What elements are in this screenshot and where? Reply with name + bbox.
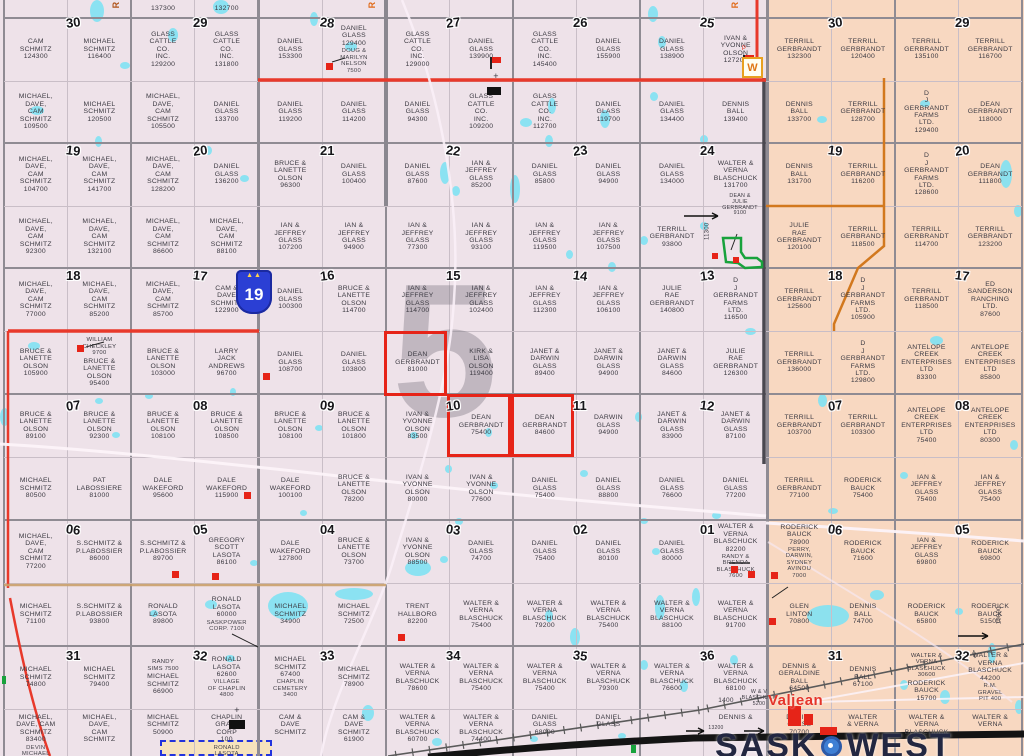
owner-text-line: MICHAEL, <box>19 533 53 540</box>
parcel-cell[interactable]: WALTER &VERNABLASCHUCK60700 <box>386 709 450 756</box>
section-number: 04 <box>320 522 334 537</box>
map-line <box>723 238 762 268</box>
parcel-cell[interactable]: IVAN &YVONNEOLSON88500 <box>386 520 450 583</box>
parcel-cell[interactable]: MICHAEL,DAVE,CAMSCHMITZ109500 <box>4 81 68 143</box>
owner-text-line: 136000 <box>787 366 811 373</box>
owner-text-line: MICHAEL <box>338 666 370 673</box>
owner-text-line: DANIEL <box>659 101 685 108</box>
owner-text-line: BLASCHUCK <box>587 678 631 685</box>
parcel-cell[interactable]: ANTELOPECREEKENTERPRISESLTD75400 <box>895 394 959 457</box>
parcel-cell[interactable]: MICHAEL,DAVE, CAMSCHMITZ83400DEVINMICHAE… <box>4 709 68 756</box>
parcel-cell[interactable]: KIRK &LISAOLSON119400 <box>449 331 513 394</box>
parcel-cell[interactable]: IAN &JEFFREYGLASS69800 <box>895 520 959 583</box>
farmstead-icon <box>712 253 718 259</box>
parcel-cell[interactable]: DJGERBRANDTFARMSLTD.129800 <box>831 331 895 394</box>
owner-text-line: 125600 <box>787 303 811 310</box>
owner-text-line: D <box>924 90 929 97</box>
owner-text-line: DANIEL <box>659 163 685 170</box>
parcel-cell[interactable]: GLASSCATTLECO.INC.109200 <box>449 81 513 143</box>
parcel-cell[interactable]: WALTER &VERNABLASCHUCK30600RODERICKBAUCK… <box>895 646 959 709</box>
owner-text-line: TERRILL <box>848 38 878 45</box>
parcel-cell[interactable]: IAN &JEFFREYGLASS75400 <box>895 457 959 520</box>
owner-text-line: BRUCE & <box>338 537 370 544</box>
parcel-cell[interactable]: TRENTHALLBORG82200 <box>386 583 450 646</box>
owner-text-line: 133700 <box>787 116 811 123</box>
owner-text-line: GLASS <box>215 171 239 178</box>
owner-text-line: VERNA <box>978 721 1003 728</box>
highlighted-parcel-outline[interactable] <box>384 331 447 396</box>
owner-text-line: AVINOU <box>786 566 813 572</box>
building-icon <box>229 720 245 729</box>
parcel-cell[interactable]: DENNISBALL131700 <box>768 143 832 206</box>
parcel-cell[interactable]: WILLIAMCHECKLEY9700BRUCE &LANETTEOLSON95… <box>68 331 132 394</box>
owner-text-line: BLASCHUCK <box>968 667 1012 674</box>
parcel-cell[interactable]: DJGERBRANDTFARMSLTD.129400 <box>895 81 959 143</box>
parcel-cell[interactable]: MICHAELSCHMITZ71100 <box>4 583 68 646</box>
parcel-cell[interactable]: CAM &DAVESCHMITZ61900 <box>322 709 386 756</box>
section-number: 05 <box>954 521 970 538</box>
parcel-cell[interactable]: IAN &JEFFREYGLASS94900 <box>322 206 386 268</box>
parcel-cell[interactable]: MICHAELSCHMITZ74800 <box>4 646 68 709</box>
parcel-cell[interactable]: RODERICKBAUCK65800 <box>895 583 959 646</box>
parcel-cell[interactable]: WALTER &VERNABLASCHUCK75400 <box>577 583 641 646</box>
owner-text-line: SCHMITZ <box>147 721 179 728</box>
farmstead-icon <box>244 492 251 499</box>
owner-text-line: D <box>860 277 865 284</box>
owner-text-line: GLASS <box>596 300 620 307</box>
owner-text-line: VERNA <box>532 670 557 677</box>
owner-text-line: JANET & <box>657 411 687 418</box>
map-pin-icon <box>821 736 842 756</box>
parcel-cell[interactable]: JANET &DARWINGLASS84600 <box>640 331 704 394</box>
owner-text-line: 134000 <box>660 178 684 185</box>
owner-text-line: RODERICK <box>971 540 1009 547</box>
owner-text-line: WALTER & <box>463 663 499 670</box>
owner-text-line: SCHMITZ <box>338 674 370 681</box>
owner-text-line: 69800 <box>980 555 1000 562</box>
owner-text-line: 116400 <box>88 53 112 60</box>
section-number: 15 <box>446 268 460 283</box>
owner-text-line: GLASS <box>469 300 493 307</box>
section-number: 32 <box>954 647 970 664</box>
parcel-cell[interactable]: DANIELGLASS77200 <box>704 457 768 520</box>
owner-text-line: YVONNE <box>466 481 496 488</box>
owner-text-line: GLASS <box>278 108 302 115</box>
owner-text-line: CREEK <box>914 351 939 358</box>
owner-text-line: DAVE, <box>216 226 237 233</box>
owner-text-line: CO. <box>411 46 424 53</box>
owner-text-line: GERBRANDT <box>777 422 822 429</box>
owner-text-line: VERNA <box>723 167 748 174</box>
owner-text-line: 114700 <box>915 241 939 248</box>
parcel-cell[interactable]: BRUCE &LANETTEOLSON108100 <box>259 394 323 457</box>
owner-text-line: 155900 <box>596 53 620 60</box>
owner-text-line: WALTER & <box>527 663 563 670</box>
parcel-cell[interactable]: RONALDLASOTA89800 <box>131 583 195 646</box>
owner-text-line: 75400 <box>853 492 873 499</box>
parcel-cell[interactable]: WALTER &VERNABLASCHUCK91700 <box>704 583 768 646</box>
parcel-cell[interactable]: DANIELGLASS68000 <box>513 709 577 756</box>
owner-text-line: 86100 <box>217 559 237 566</box>
owner-text-line: 128600 <box>914 189 938 196</box>
parcel-cell[interactable]: GLASSCATTLECO.INC.145400 <box>513 18 577 81</box>
owner-text-line: 96300 <box>280 182 300 189</box>
owner-text-line: 129800 <box>851 377 875 384</box>
owner-text-line: OLSON <box>278 175 303 182</box>
parcel-cell[interactable]: DANIELGLASS153300 <box>259 18 323 81</box>
parcel-cell[interactable]: 137300 <box>131 0 195 18</box>
parcel-cell[interactable]: BRUCE &LANETTEOLSON78200 <box>322 457 386 520</box>
owner-text-line: GLASS <box>406 108 430 115</box>
owner-text-line: GREGORY <box>209 537 245 544</box>
owner-text-line: DANIEL <box>341 101 367 108</box>
owner-text-line: 100300 <box>278 303 302 310</box>
owner-text-line: DAVE, <box>25 540 46 547</box>
parcel-cell[interactable]: IAN &JEFFREYGLASS77300 <box>386 206 450 268</box>
section-number: 06 <box>827 521 843 538</box>
owner-text-line: 114200 <box>342 116 366 123</box>
owner-text-line: TERRILL <box>848 226 878 233</box>
owner-text-line: BRUCE & <box>274 411 306 418</box>
owner-text-line: GLASS <box>342 359 366 366</box>
parcel-cell[interactable]: TERRILLGERBRANDT125600 <box>768 268 832 331</box>
section-number: 19 <box>65 142 81 159</box>
owner-text-line: BLASCHUCK <box>459 729 503 736</box>
parcel-cell[interactable]: TERRILLGERBRANDT135100 <box>895 18 959 81</box>
owner-text-line: IAN & <box>472 222 491 229</box>
owner-text-line: CAM <box>155 233 171 240</box>
crossing-marker-icon <box>2 676 6 684</box>
owner-text-line: GLASS <box>406 300 430 307</box>
parcel-cell[interactable]: IAN &JEFFREYGLASS93100 <box>449 206 513 268</box>
owner-text-line: DENNIS & <box>719 714 753 721</box>
parcel-cell[interactable]: IAN &JEFFREYGLASS75400 <box>958 457 1022 520</box>
parcel-cell[interactable]: BRUCE &LANETTEOLSON96300 <box>259 143 323 206</box>
parcel-cell[interactable]: CAM &DAVESCHMITZ <box>259 709 323 756</box>
parcel-cell[interactable]: WALTER &VERNABLASCHUCK88100 <box>640 583 704 646</box>
parcel-cell[interactable]: CHAPLINGRAINCORP100RONALDLASOTA80000 <box>195 709 259 756</box>
owner-text-line: 89400 <box>535 370 555 377</box>
parcel-cell[interactable]: BRUCE &LANETTEOLSON105900 <box>4 331 68 394</box>
owner-text-line: CAM <box>155 108 171 115</box>
owner-text-line: 119700 <box>597 116 621 123</box>
owner-text-line: PAT <box>93 477 106 484</box>
map-annotation: + <box>231 706 243 716</box>
parcel-cell[interactable]: IVAN &YVONNEOLSON77600 <box>449 457 513 520</box>
parcel-cell[interactable]: DEANGERBRANDT118000 <box>958 81 1022 143</box>
owner-text-line: SCHMITZ <box>211 241 243 248</box>
owner-text-line: DAVE, CAM <box>16 721 55 728</box>
owner-text-line: CORP. 7100 <box>207 626 247 632</box>
owner-text-line: MICHAEL <box>83 38 115 45</box>
parcel-cell[interactable]: MICHAELSCHMITZ67400CHAPLINCEMETERY3400 <box>259 646 323 709</box>
owner-text-line: 60000 <box>217 611 237 618</box>
owner-text-line: SCHMITZ <box>83 108 115 115</box>
owner-text-line: 84600 <box>662 370 682 377</box>
owner-text-line: WALTER & <box>400 714 436 721</box>
parcel-cell[interactable]: DENNISBALL139400 <box>704 81 768 143</box>
owner-text-line: GLASS <box>978 489 1002 496</box>
owner-text-line: 118500 <box>915 303 939 310</box>
owner-text-line: MICHAEL <box>147 673 179 680</box>
parcel-cell[interactable]: RODERICKBAUCK51500 <box>958 583 1022 646</box>
owner-text-line: GERBRANDT <box>840 355 885 362</box>
parcel-cell[interactable]: GLASSCATTLECO.INC.112700 <box>513 81 577 143</box>
farmstead-icon <box>748 571 755 578</box>
owner-text-line: 80000 <box>662 555 682 562</box>
parcel-cell[interactable]: MICHAELSCHMITZ120500 <box>68 81 132 143</box>
highlighted-parcel-outline[interactable] <box>511 394 574 457</box>
parcel-cell[interactable]: TERRILLGERBRANDT114700 <box>895 206 959 268</box>
parcel-cell[interactable]: DANIELGLASS108700 <box>259 331 323 394</box>
parcel-cell[interactable]: TERRILLGERBRANDT77100 <box>768 457 832 520</box>
parcel-cell[interactable]: MICHAEL,DAVE,CAMSCHMITZ128200 <box>131 143 195 206</box>
parcel-cell[interactable]: TERRILLGERBRANDT103700 <box>768 394 832 457</box>
farmstead-icon <box>731 566 738 573</box>
parcel-cell[interactable]: DANIELGLASS103800 <box>322 331 386 394</box>
parcel-cell[interactable]: RONALDLASOTA60000SASKPOWERCORP. 7100 <box>195 583 259 646</box>
owner-text-line: 112700 <box>533 123 557 130</box>
owner-text-line: FARMS <box>851 300 876 307</box>
parcel-cell[interactable]: IVAN &YVONNEOLSON80000 <box>386 457 450 520</box>
owner-text-line: 9700 <box>83 350 117 356</box>
parcel-cell[interactable]: DANIELGLASS119200 <box>259 81 323 143</box>
shield-crown-icon: ▲▲ <box>246 272 262 279</box>
parcel-cell[interactable]: DANIELGLASS85800 <box>513 143 577 206</box>
parcel-cell[interactable]: JULIERAEGERBRANDT140800 <box>640 268 704 331</box>
parcel-cell[interactable]: MICHAEL,DAVE,CAMSCHMITZ104700 <box>4 143 68 206</box>
owner-text-line: JEFFREY <box>911 481 943 488</box>
parcel-cell[interactable]: DENNISBALL133700 <box>768 81 832 143</box>
owner-text-line: ANTELOPE <box>907 344 945 351</box>
owner-text-line: 96700 <box>217 370 237 377</box>
owner-text-line: 83400 <box>26 736 46 743</box>
owner-text-line: WAKEFORD <box>270 485 311 492</box>
owner-text-line: OLSON <box>405 552 430 559</box>
owner-text-line: LTD. <box>983 303 998 310</box>
parcel-cell[interactable]: TERRILLGERBRANDT118500 <box>831 206 895 268</box>
owner-text-line: SCHMITZ <box>20 303 52 310</box>
parcel-cell[interactable]: S.SCHMITZ &P.LABOSSIER89700 <box>131 520 195 583</box>
owner-text-line: 60700 <box>407 736 427 743</box>
owner-text-line: JULIE <box>789 222 809 229</box>
parcel-cell[interactable]: DALEWAKEFORD100100 <box>259 457 323 520</box>
owner-text-line: IAN & <box>408 285 427 292</box>
parcel-cell[interactable]: DANIELGLASS138900 <box>640 18 704 81</box>
owner-text-line: MICHAEL, <box>19 218 53 225</box>
parcel-cell[interactable]: MICHAEL,DAVE,CAMSCHMITZ105500 <box>131 81 195 143</box>
parcel-cell[interactable]: DJGERBRANDTFARMSLTD.128600 <box>895 143 959 206</box>
owner-text-line: MICHAEL <box>20 603 52 610</box>
owner-text-line: OLSON <box>405 489 430 496</box>
owner-text-line: 120100 <box>787 244 811 251</box>
owner-text-line: SCHMITZ <box>147 178 179 185</box>
parcel-cell[interactable]: JULIERAEGERBRANDT120100 <box>768 206 832 268</box>
parcel-cell[interactable]: MICHAEL,DAVE,CAMSCHMITZ <box>68 709 132 756</box>
parcel-cell[interactable]: TERRILLGERBRANDT136000 <box>768 331 832 394</box>
owner-text-line: GLASS <box>469 237 493 244</box>
owner-text-line: MICHAEL, <box>82 156 116 163</box>
owner-text-line: 79200 <box>535 622 555 629</box>
parcel-cell[interactable]: RODERICKBAUCK75400 <box>831 457 895 520</box>
parcel-cell[interactable]: IAN &JEFFREYGLASS107500 <box>577 206 641 268</box>
parcel-cell[interactable]: DANIELGLASS76600 <box>640 457 704 520</box>
parcel-cell[interactable]: DENNISBALL74700 <box>831 583 895 646</box>
owner-text-line: GERBRANDT <box>904 105 949 112</box>
parcel-cell[interactable]: BRUCE &LANETTEOLSON103000 <box>131 331 195 394</box>
owner-text-line: DANIEL <box>595 714 621 721</box>
parcel-cell[interactable]: TERRILLGERBRANDT118500 <box>895 268 959 331</box>
parcel-cell[interactable]: MICHAEL,DAVE,CAMSCHMITZ92300 <box>4 206 68 268</box>
parcel-cell[interactable]: DANIELGLASS75400 <box>513 457 577 520</box>
owner-text-line: BRUCE & <box>274 160 306 167</box>
owner-text-line: 11300 <box>705 213 712 249</box>
parcel-cell[interactable]: DANIELGLASS119700 <box>577 81 641 143</box>
owner-text-line: LANETTE <box>211 418 243 425</box>
parcel-cell[interactable]: BRUCE &LANETTEOLSON89100 <box>4 394 68 457</box>
owner-text-line: CO. <box>538 108 551 115</box>
parcel-cell[interactable]: IAN &JEFFREYGLASS119500 <box>513 206 577 268</box>
parcel-cell[interactable]: MICHAEL,DAVE,CAMSCHMITZ86600 <box>131 206 195 268</box>
section-number: 01 <box>700 522 714 537</box>
parcel-cell[interactable]: MICHAEL,DAVE,CAMSCHMITZ77200 <box>4 520 68 583</box>
owner-text-line: WALTER & <box>590 663 626 670</box>
owner-text-line: 44200 <box>980 675 1000 682</box>
owner-text-line: DANIEL <box>341 351 367 358</box>
parcel-cell[interactable]: IVAN &YVONNEOLSON83500 <box>386 394 450 457</box>
owner-text-line: GERBRANDT <box>904 296 949 303</box>
parcel-cell[interactable]: S.SCHMITZ &P.LABOSSIER93800 <box>68 583 132 646</box>
owner-text-line: WAKEFORD <box>143 485 184 492</box>
owner-text-line: 106100 <box>596 307 620 314</box>
owner-text-line: 129400 <box>342 40 366 47</box>
owner-text-line: 77300 <box>407 244 427 251</box>
parcel-cell[interactable]: IAN &JEFFREYGLASS107200 <box>259 206 323 268</box>
parcel-cell[interactable]: GLENLINTON70800 <box>768 583 832 646</box>
parcel-cell[interactable]: DALEWAKEFORD95600 <box>131 457 195 520</box>
owner-text-line: P.LABOSSIER <box>140 548 187 555</box>
parcel-cell[interactable]: TERRILLGERBRANDT128700 <box>831 81 895 143</box>
owner-text-line: LARRY <box>215 348 239 355</box>
parcel-cell[interactable]: CAMSCHMITZ124300 <box>4 18 68 81</box>
parcel-cell[interactable]: TERRILLGERBRANDT93800 <box>640 206 704 268</box>
parcel-cell[interactable]: DALEWAKEFORD127800 <box>259 520 323 583</box>
parcel-cell[interactable]: MICHAELSCHMITZ34900 <box>259 583 323 646</box>
section-number: 08 <box>193 398 207 413</box>
parcel-cell[interactable]: DANIELGLASS134400 <box>640 81 704 143</box>
parcel-cell[interactable]: DANIELGLASS133700 <box>195 81 259 143</box>
parcel-cell[interactable]: WALTER &VERNABLASCHUCK74400 <box>449 709 513 756</box>
owner-text-line: BRUCE & <box>211 411 243 418</box>
parcel-cell[interactable]: LARRYJACKANDREWS96700 <box>195 331 259 394</box>
owner-text-line: HALLBORG <box>398 611 437 618</box>
parcel-cell[interactable]: TERRILLGERBRANDT123200 <box>958 206 1022 268</box>
parcel-cell[interactable]: ANTELOPECREEKENTERPRISESLTD83300 <box>895 331 959 394</box>
parcel-cell[interactable]: DALEWAKEFORD115900 <box>195 457 259 520</box>
owner-text-line: 92300 <box>26 248 46 255</box>
parcel-cell[interactable]: GLASSCATTLECO.INC.129200 <box>131 18 195 81</box>
owner-text-line: BAUCK <box>978 548 1003 555</box>
parcel-cell[interactable]: DANIELGLASS94300 <box>386 81 450 143</box>
section-number: 33 <box>319 647 335 664</box>
owner-text-line: CO. <box>475 108 488 115</box>
parcel-cell[interactable]: DANIELGLASS114200 <box>322 81 386 143</box>
owner-text-line: KIRK & <box>469 348 493 355</box>
owner-text-line: 132100 <box>87 248 111 255</box>
parcel-cell[interactable]: WALTER &VERNABLASCHUCK75400 <box>449 583 513 646</box>
owner-text-line: DANIEL <box>595 477 621 484</box>
parcel-cell[interactable]: JANET &DARWINGLASS94900 <box>577 331 641 394</box>
owner-text-line: 77200 <box>726 492 746 499</box>
parcel-cell[interactable]: BRUCE &LANETTEOLSON108100 <box>131 394 195 457</box>
owner-text-line: LTD <box>984 429 997 436</box>
owner-text-line: BLASCHUCK <box>523 615 567 622</box>
parcel-cell[interactable]: MICHAEL,DAVE,CAMSCHMITZ77000 <box>4 268 68 331</box>
parcel-cell[interactable]: MICHAEL,DAVE,CAMSCHMITZ132100 <box>68 206 132 268</box>
owner-text-line: LTD. <box>728 307 743 314</box>
parcel-cell[interactable]: WALTER &VERNABLASCHUCK79200 <box>513 583 577 646</box>
parcel-cell[interactable]: GLASSCATTLECO.INC.129000 <box>386 18 450 81</box>
parcel-cell[interactable]: WALTER &VERNA <box>958 709 1022 756</box>
parcel-cell[interactable]: IAN &JEFFREYGLASS112300 <box>513 268 577 331</box>
parcel-cell[interactable]: RANDYSIMS 7500MICHAELSCHMITZ66900 <box>131 646 195 709</box>
owner-text-line: GLASS <box>660 171 684 178</box>
parcel-cell[interactable]: JANET &DARWINGLASS89400 <box>513 331 577 394</box>
owner-text-line: 74700 <box>471 555 491 562</box>
owner-text-line: GLASS <box>151 31 175 38</box>
section-number: 06 <box>65 521 81 538</box>
owner-text-line: VERNA <box>660 670 685 677</box>
parcel-cell[interactable]: WALTER &VERNABLASCHUCK75400 <box>513 646 577 709</box>
parcel-cell[interactable]: MICHAEL,DAVE,CAMSCHMITZ85700 <box>131 268 195 331</box>
parcel-cell[interactable]: MICHAELSCHMITZ50900 <box>131 709 195 756</box>
owner-text-line: 80000 <box>407 496 427 503</box>
owner-text-line: 112300 <box>533 307 557 314</box>
owner-text-line: NELSON <box>340 61 368 67</box>
parcel-cell[interactable]: ANTELOPECREEKENTERPRISESLTD85800 <box>958 331 1022 394</box>
parcel-cell[interactable]: DANIELGLASS87600 <box>386 143 450 206</box>
owner-text-line: SCHMITZ <box>20 178 52 185</box>
parcel-cell[interactable]: TERRILLGERBRANDT132300 <box>768 18 832 81</box>
owner-text-line: 89100 <box>26 433 46 440</box>
owner-text-line: LTD <box>920 366 933 373</box>
parcel-cell[interactable]: PATLABOSSIERE81000 <box>68 457 132 520</box>
owner-text-line: 86000 <box>89 555 109 562</box>
parcel-cell[interactable]: DANIELGLASS88800 <box>577 457 641 520</box>
parcel-cell[interactable]: DANIELGLASS134000 <box>640 143 704 206</box>
owner-text-line: WAKEFORD <box>206 485 247 492</box>
owner-text-line: 145400 <box>533 61 557 68</box>
owner-text-line: GERBRANDT <box>650 300 695 307</box>
parcel-cell[interactable]: DANIELGLASS75400 <box>513 520 577 583</box>
owner-text-line: DAVE, <box>25 288 46 295</box>
owner-text-line: GERBRANDT <box>840 233 885 240</box>
parcel-cell[interactable]: JANET &DARWINGLASS83900 <box>640 394 704 457</box>
section-number: 07 <box>65 397 81 414</box>
parcel-cell[interactable]: WALTER &VERNABLASCHUCK76600 <box>640 646 704 709</box>
parcel-cell[interactable]: MICHAELSCHMITZ72500 <box>322 583 386 646</box>
parcel-cell[interactable]: MICHAEL,DAVE,CAMSCHMITZ88100 <box>195 206 259 268</box>
owner-text-line: 65800 <box>916 618 936 625</box>
parcel-cell[interactable]: MICHAELSCHMITZ80500 <box>4 457 68 520</box>
owner-text-line: GLASS <box>596 548 620 555</box>
owner-text-line: 88100 <box>662 622 682 629</box>
parcel-cell[interactable]: JULIERAEGERBRANDT126300 <box>704 331 768 394</box>
owner-text-line: 136200 <box>215 178 239 185</box>
parcel-cell[interactable]: WALTER &VERNABLASCHUCK78600 <box>386 646 450 709</box>
parcel-cell[interactable]: DANIELGLASS80000 <box>640 520 704 583</box>
parcel-cell[interactable]: IAN &JEFFREYGLASS114700 <box>386 268 450 331</box>
